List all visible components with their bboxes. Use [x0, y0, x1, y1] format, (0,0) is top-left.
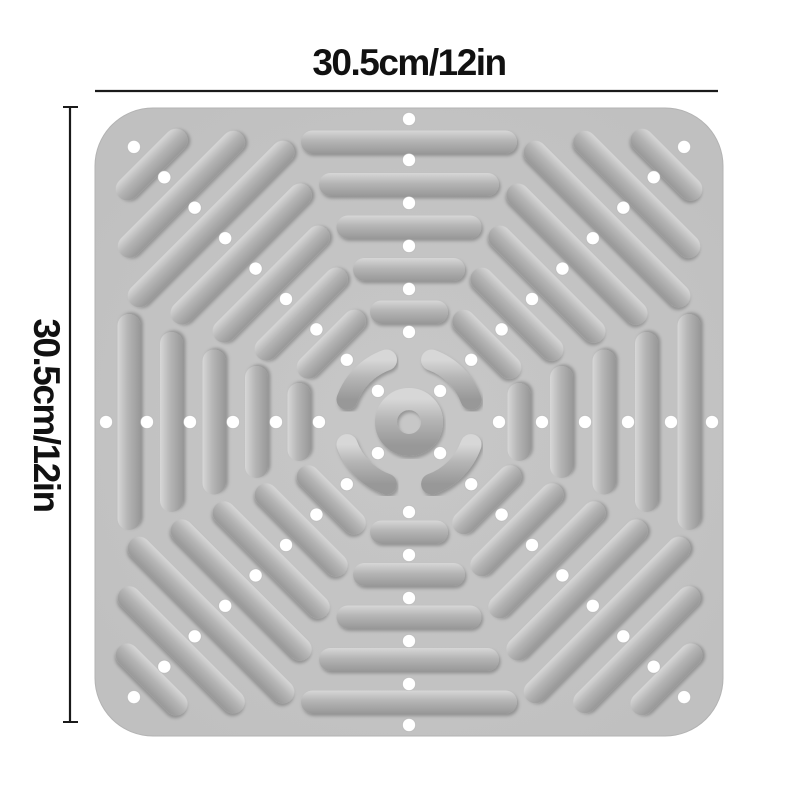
- drain-hole: [465, 353, 478, 366]
- drain-hole: [188, 630, 201, 643]
- drain-hole: [403, 197, 416, 210]
- drain-hole: [403, 549, 416, 562]
- drain-hole: [556, 262, 569, 275]
- drain-hole: [403, 113, 416, 126]
- drain-hole: [579, 416, 592, 429]
- drain-hole: [556, 569, 569, 582]
- drain-hole: [403, 678, 416, 691]
- drain-hole: [403, 283, 416, 296]
- drain-hole: [665, 416, 678, 429]
- drain-hole: [280, 293, 293, 306]
- drain-hole: [495, 323, 508, 336]
- drain-hole: [100, 416, 113, 429]
- drain-hole: [188, 201, 201, 214]
- drain-hole: [403, 240, 416, 253]
- drain-hole: [434, 384, 447, 397]
- drain-hole: [403, 719, 416, 732]
- drain-hole: [127, 691, 140, 704]
- drain-hole: [647, 171, 660, 184]
- texture-bar-east: [635, 332, 658, 512]
- texture-bar-west: [160, 332, 183, 512]
- texture-bar-west: [118, 314, 141, 530]
- texture-bar-north: [319, 173, 499, 196]
- texture-bar-south: [337, 606, 482, 629]
- drain-hole: [227, 416, 240, 429]
- drain-hole: [371, 447, 384, 460]
- texture-bar-west: [245, 366, 268, 478]
- texture-bar-south: [370, 521, 448, 544]
- drain-hole: [678, 140, 691, 153]
- drain-hole: [371, 384, 384, 397]
- drain-hole: [403, 506, 416, 519]
- texture-bar-east: [593, 350, 616, 495]
- drain-hole: [678, 691, 691, 704]
- texture-bar-north: [301, 131, 517, 154]
- texture-bar-north: [353, 258, 465, 281]
- drain-hole: [310, 508, 323, 521]
- drain-hole: [617, 201, 630, 214]
- drain-hole: [465, 478, 478, 491]
- drain-hole: [403, 592, 416, 605]
- product-illustration: 30.5cm/12in 30.5cm/12in: [0, 0, 800, 800]
- texture-bar-west: [288, 383, 311, 461]
- drain-hole: [280, 539, 293, 552]
- drain-hole: [184, 416, 197, 429]
- texture-bar-east: [678, 314, 701, 530]
- drain-hole: [493, 416, 506, 429]
- drain-hole: [403, 154, 416, 167]
- drain-hole: [340, 353, 353, 366]
- texture-bar-north: [370, 301, 448, 324]
- drain-hole: [158, 660, 171, 673]
- texture-bar-east: [508, 383, 531, 461]
- texture-bar-west: [203, 350, 226, 495]
- texture-bar-east: [550, 366, 573, 478]
- drain-hole: [249, 569, 262, 582]
- drain-hole: [434, 447, 447, 460]
- drain-hole: [340, 478, 353, 491]
- drain-hole: [403, 326, 416, 339]
- drain-hole: [219, 599, 232, 612]
- drain-hole: [622, 416, 635, 429]
- drain-hole: [219, 232, 232, 245]
- drain-hole: [270, 416, 283, 429]
- drain-hole: [586, 599, 599, 612]
- shower-mat-graphic: [0, 0, 800, 800]
- drain-hole: [706, 416, 719, 429]
- drain-hole: [141, 416, 154, 429]
- drain-hole: [127, 140, 140, 153]
- drain-hole: [526, 293, 539, 306]
- drain-hole: [647, 660, 660, 673]
- height-dimension-label: 30.5cm/12in: [25, 318, 67, 511]
- width-dimension-label: 30.5cm/12in: [95, 42, 723, 84]
- texture-bar-south: [301, 691, 517, 714]
- drain-hole: [403, 635, 416, 648]
- drain-hole: [536, 416, 549, 429]
- drain-hole: [526, 539, 539, 552]
- texture-bar-south: [319, 648, 499, 671]
- drain-hole: [617, 630, 630, 643]
- drain-hole: [313, 416, 326, 429]
- texture-bar-north: [337, 216, 482, 239]
- drain-hole: [310, 323, 323, 336]
- drain-hole: [158, 171, 171, 184]
- texture-bar-south: [353, 563, 465, 586]
- drain-hole: [249, 262, 262, 275]
- drain-hole: [495, 508, 508, 521]
- drain-hole: [586, 232, 599, 245]
